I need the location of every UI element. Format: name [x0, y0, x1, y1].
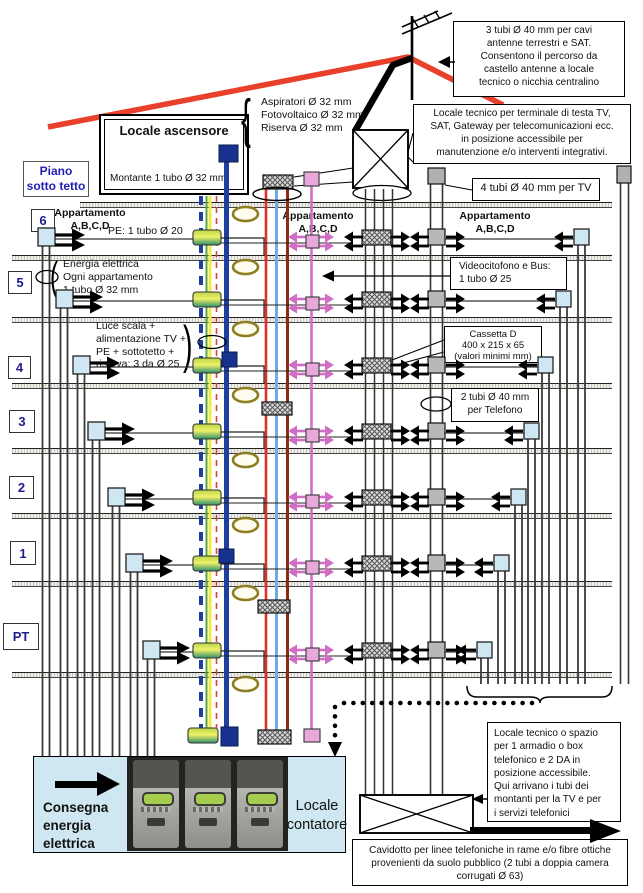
callout-locale-tecnico-testa: Locale tecnico per terminale di testa TV… [413, 104, 631, 164]
phone-bundle-brace [467, 686, 612, 703]
locale-spazio-pointer [472, 794, 487, 804]
antenna-icon [402, 11, 452, 100]
pe-tube-label: PE: 1 tubo Ø 20 [108, 225, 183, 238]
luce-callout-ellipse [198, 336, 226, 349]
meter-lcd [194, 792, 226, 806]
locale-tecnico-testa-box [353, 130, 408, 188]
riser-bottom-terminal [188, 728, 218, 743]
electric-meter [237, 760, 283, 848]
luce-scala-label: Luce scala + alimentazione TV + PE + sot… [96, 320, 186, 371]
meter-lcd [246, 792, 278, 806]
elevator-riser-label: Montante 1 tubo Ø 32 mm [110, 173, 226, 184]
elevator-room-title: Locale ascensore [101, 123, 247, 138]
service-risers [266, 188, 288, 730]
elevator-riser-junctions [219, 145, 238, 746]
meter-room: Consegna energia elettrica Locale contat… [33, 756, 346, 853]
floor-pt-hardware [143, 641, 492, 756]
service-trio-sleeve [253, 188, 301, 201]
callout-videocitofono: Videocitofono e Bus: 1 tubo Ø 25 [450, 257, 567, 290]
riser-diagram-page: 3 tubi Ø 40 mm per cavi antenne terrestr… [0, 0, 643, 893]
slab-roof-level [80, 202, 612, 208]
dotted-route-arrowhead [328, 742, 342, 757]
tv-tubes-sleeve [353, 186, 411, 201]
electric-meter [185, 760, 231, 848]
electric-meter [133, 760, 179, 848]
central-risers [201, 162, 227, 732]
floor-label-5: 5 [8, 271, 32, 294]
meters-photo [127, 757, 288, 851]
slab-1 [12, 581, 612, 587]
meter-lcd [142, 792, 174, 806]
slab-2 [12, 513, 612, 519]
telefono-callout-ellipse [421, 397, 451, 411]
tv-riser-cap [428, 168, 445, 184]
tv-main-riser [431, 184, 443, 795]
aspiratori-label: Aspiratori Ø 32 mm Fotovoltaico Ø 32 mm … [261, 96, 364, 134]
floor-2-hardware [108, 488, 526, 756]
slab-3 [12, 448, 612, 454]
slab-pt [12, 672, 612, 678]
callout-cassetta-d: Cassetta D 400 x 215 x 65 (valori minimi… [444, 326, 542, 363]
floor-label-3: 3 [9, 410, 35, 433]
elevator-room-box: Locale ascensore Montante 1 tubo Ø 32 mm [99, 114, 249, 195]
locale-contatore-label: Locale contatore [286, 797, 348, 835]
far-right-riser-cap [617, 166, 631, 183]
tubi3-pointer-arrow [438, 56, 450, 68]
apartment-label-middle: Appartamento A,B,C,D [272, 210, 364, 236]
meter-detail [193, 807, 223, 812]
callout-2-tubi-telefono: 2 tubi Ø 40 mm per Telefono [451, 388, 539, 422]
callout-3-tubi-antenne: 3 tubi Ø 40 mm per cavi antenne terrestr… [453, 21, 625, 97]
videocitofono-pointer [322, 271, 450, 282]
aspiratori-brace: { [241, 88, 251, 150]
pink-riser-top-box [304, 172, 319, 186]
floor-label-pt: PT [3, 623, 39, 650]
telecom-room-box [360, 795, 473, 833]
energia-paren: ( [50, 255, 58, 300]
floor-label-2: 2 [9, 476, 34, 499]
far-right-riser [621, 183, 629, 684]
energia-elettrica-label: Energia elettrica Ogni appartamento 1 tu… [63, 258, 153, 296]
pink-riser-bottom-box [304, 729, 320, 742]
callout-4-tubi-tv: 4 tubi Ø 40 mm per TV [472, 178, 600, 201]
callout-cavidotto: Cavidotto per linee telefoniche in rame … [352, 839, 628, 886]
tv-riser-tubes [366, 189, 393, 795]
floor-3-hardware [88, 422, 539, 756]
floor-label-1: 1 [10, 541, 36, 565]
apartment-label-right: Appartamento A,B,C,D [442, 210, 548, 236]
callout-locale-spazio: Locale tecnico o spazio per 1 armadio o … [487, 722, 621, 822]
meter-detail [245, 807, 275, 812]
meter-button [251, 818, 269, 826]
floor-label-4: 4 [8, 356, 31, 379]
meter-detail [141, 807, 171, 812]
meter-button [199, 818, 217, 826]
meter-button [147, 818, 165, 826]
consegna-energia-label: Consegna energia elettrica [43, 799, 108, 854]
piano-sotto-tetto-label: Piano sotto tetto [23, 161, 89, 197]
luce-paren: ) [183, 315, 193, 375]
